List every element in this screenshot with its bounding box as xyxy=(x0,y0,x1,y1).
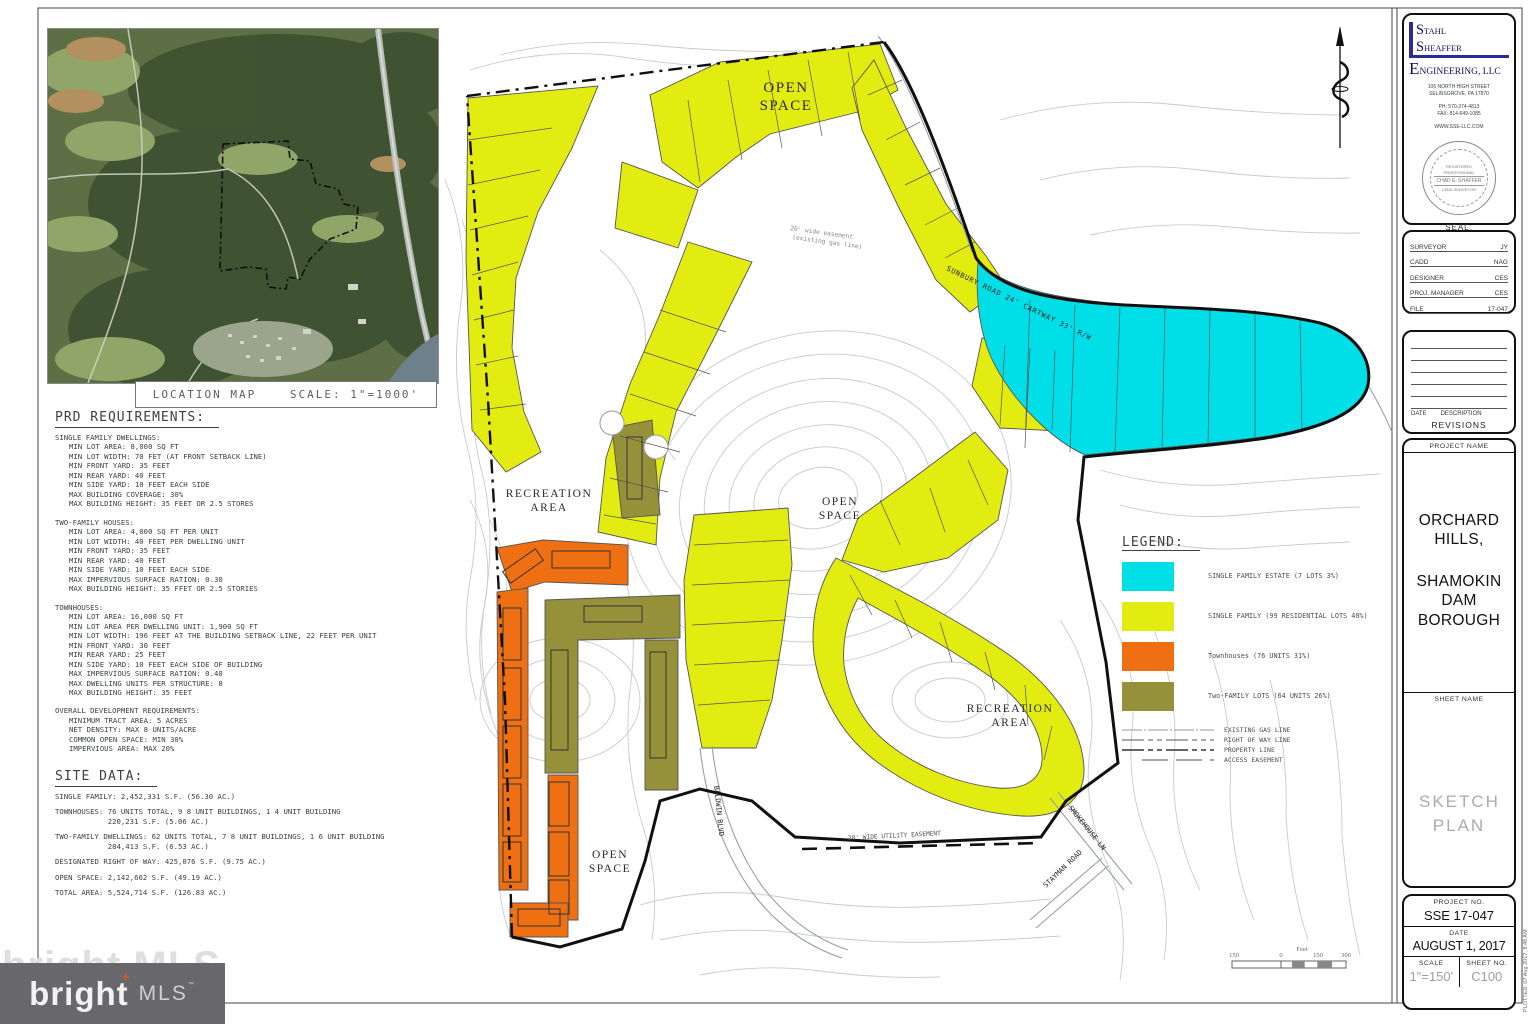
plan-sheet: OPEN SPACE RECREATION AREA OPEN SPACE RE… xyxy=(0,0,1536,1024)
recreation-left-label: RECREATION xyxy=(506,488,593,500)
prd-requirements-title: PRD REQUIREMENTS: xyxy=(55,410,219,428)
svg-text:300: 300 xyxy=(1341,952,1351,959)
svg-text:0: 0 xyxy=(1279,952,1282,959)
firm-phone-fax: PH: 570-374-4813 FAX: 814-649-1085 xyxy=(1409,104,1509,119)
legend-property-line: PROPERTY LINE xyxy=(1122,745,1374,754)
smokehouse-ln-label: SMOKEHOUSE LN xyxy=(1066,804,1107,852)
project-name-box: PROJECT NAME ORCHARD HILLS, SHAMOKIN DAM… xyxy=(1402,438,1516,888)
sheet-no: C100 xyxy=(1460,969,1515,987)
project-no: SSE 17-047 xyxy=(1404,908,1514,926)
sheet-no-cell: SHEET NO. C100 xyxy=(1459,957,1515,987)
credits-box: SURVEYORJY CADDNAG DESIGNERCES PROJ. MAN… xyxy=(1402,230,1516,314)
firm-box: Stahl Sheaffer Engineering, LLC 106 NORT… xyxy=(1402,13,1516,225)
location-map-title: LOCATION MAP xyxy=(153,388,256,401)
svg-text:150: 150 xyxy=(1229,952,1239,959)
two-family-swatch xyxy=(1122,682,1174,711)
surveyor-seal: REGISTERED PROFESSIONAL CHAD E. SHAFFER … xyxy=(1422,141,1496,215)
svg-text:AREA: AREA xyxy=(530,502,567,514)
legend-row-line: RIGHT OF WAY LINE xyxy=(1122,735,1374,744)
svg-text:AREA: AREA xyxy=(991,717,1028,729)
credit-designer: DESIGNERCES xyxy=(1410,267,1508,283)
scale-bar: 150 0 Feet 150 300 xyxy=(1229,946,1351,968)
credit-file: FILE17-047 xyxy=(1410,298,1508,314)
legend: LEGEND: SINGLE FAMILY ESTATE (7 LOTS 3%)… xyxy=(1122,533,1374,765)
site-data-row: DESIGNATED RIGHT OF WAY: 425,076 S.F. (9… xyxy=(55,857,411,866)
firm-website: WWW.SSE-LLC.COM xyxy=(1409,124,1509,132)
bright-wordmark: bright + xyxy=(29,975,128,1013)
road-lines xyxy=(700,36,1392,958)
site-data-single-family: SINGLE FAMILY: 2,452,331 S.F. (56.30 AC.… xyxy=(55,792,411,801)
prd-section-townhouses: TOWNHOUSES: MIN LOT AREA: 16,000 SQ FT M… xyxy=(55,603,411,698)
location-map-caption: LOCATION MAP SCALE: 1"=1000' xyxy=(135,381,437,408)
site-data-title: SITE DATA: xyxy=(55,769,157,787)
legend-access-easement: ACCESS EASEMENT xyxy=(1122,755,1374,764)
bright-plus-icon: + xyxy=(122,969,131,984)
svg-text:SPACE: SPACE xyxy=(760,98,813,114)
legend-gas-line: EXISTING GAS LINE xyxy=(1122,725,1374,734)
legend-title: LEGEND: xyxy=(1122,535,1200,551)
open-space-center-label: OPEN xyxy=(822,496,858,508)
north-arrow-icon xyxy=(1332,26,1348,148)
svg-text:SPACE: SPACE xyxy=(819,510,861,522)
plotted-note: PLOTTED: 07 Aug 2017, 8:48 AM xyxy=(1523,812,1529,1012)
mls-wordmark: MLS™ xyxy=(139,982,196,1006)
legend-item-two-family: Two-FAMILY LOTS (64 UNITS 26%) xyxy=(1122,681,1374,711)
firm-address: 106 NORTH HIGH STREET SELINSGROVE, PA 17… xyxy=(1409,84,1509,99)
date-label: DATE xyxy=(1404,927,1514,939)
prd-section-single-family: SINGLE FAMILY DWELLINGS: MIN LOT AREA: 8… xyxy=(55,433,411,509)
svg-text:Feet: Feet xyxy=(1296,946,1307,953)
legend-item-single-family: SINGLE FAMILY (99 RESIDENTIAL LOTS 40%) xyxy=(1122,601,1374,631)
firm-logo: Stahl Sheaffer Engineering, LLC xyxy=(1409,22,1509,79)
site-data-open-space: OPEN SPACE: 2,142,662 S.F. (49.19 AC.) xyxy=(55,873,411,882)
location-map-scale: SCALE: 1"=1000' xyxy=(290,388,419,401)
townhouses-swatch xyxy=(1122,642,1174,671)
credit-surveyor: SURVEYORJY xyxy=(1410,236,1508,252)
plan-date: AUGUST 1, 2017 xyxy=(1404,939,1514,956)
sheet-name-label: SHEET NAME xyxy=(1404,692,1514,705)
stayman-road-label: STAYMAN ROAD xyxy=(1042,849,1084,890)
revisions-title: REVISIONS xyxy=(1404,420,1514,430)
open-space-bottom-label: OPEN xyxy=(592,849,628,861)
recreation-right-label: RECREATION xyxy=(967,703,1054,715)
site-data-townhouses: TOWNHOUSES: 76 UNITS TOTAL, 9 8 UNIT BUI… xyxy=(55,807,411,826)
project-name-label: PROJECT NAME xyxy=(1404,440,1514,453)
svg-text:SPACE: SPACE xyxy=(589,863,631,875)
site-data-total-area: TOTAL AREA: 5,524,714 S.F. (126.83 AC.) xyxy=(55,888,411,897)
estate-swatch xyxy=(1122,562,1174,591)
credit-cadd: CADDNAG xyxy=(1410,252,1508,268)
site-data-two-family: TWO-FAMILY DWELLINGS: 62 UNITS TOTAL, 7 … xyxy=(55,832,411,851)
location-map xyxy=(47,28,439,384)
plan-scale: 1"=150' xyxy=(1404,969,1459,987)
credit-proj-manager: PROJ. MANAGERCES xyxy=(1410,283,1508,299)
notes-column: PRD REQUIREMENTS: SINGLE FAMILY DWELLING… xyxy=(55,410,411,904)
open-space-top-label: OPEN xyxy=(763,80,808,96)
project-no-label: PROJECT NO. xyxy=(1404,896,1514,908)
legend-item-townhouses: Townhouses (76 UNITS 31%) xyxy=(1122,641,1374,671)
bright-mls-logo: bright + MLS™ xyxy=(0,963,225,1024)
single-family-swatch xyxy=(1122,602,1174,631)
revisions-header: DATE DESCRIPTION xyxy=(1411,411,1507,417)
legend-line-types: EXISTING GAS LINE RIGHT OF WAY LINE PROP… xyxy=(1122,725,1374,764)
svg-text:150: 150 xyxy=(1313,952,1323,959)
legend-item-estate: SINGLE FAMILY ESTATE (7 LOTS 3%) xyxy=(1122,561,1374,591)
project-name: ORCHARD HILLS, xyxy=(1404,511,1514,550)
title-block: Stahl Sheaffer Engineering, LLC 106 NORT… xyxy=(1400,8,1522,1010)
revisions-box: DATE DESCRIPTION REVISIONS xyxy=(1402,330,1516,434)
aerial-photo xyxy=(48,29,438,383)
scale-cell: SCALE 1"=150' xyxy=(1404,957,1459,987)
prd-section-overall: OVERALL DEVELOPMENT REQUIREMENTS: MINIMU… xyxy=(55,706,411,753)
project-info-box: PROJECT NO. SSE 17-047 DATE AUGUST 1, 20… xyxy=(1402,894,1516,1010)
prd-section-two-family: TWO-FAMILY HOUSES: MIN LOT AREA: 4,000 S… xyxy=(55,518,411,594)
utility-easement-label: 20' WIDE UTILITY EASEMENT xyxy=(848,830,942,842)
sheet-name: SKETCH PLAN xyxy=(1419,790,1499,838)
